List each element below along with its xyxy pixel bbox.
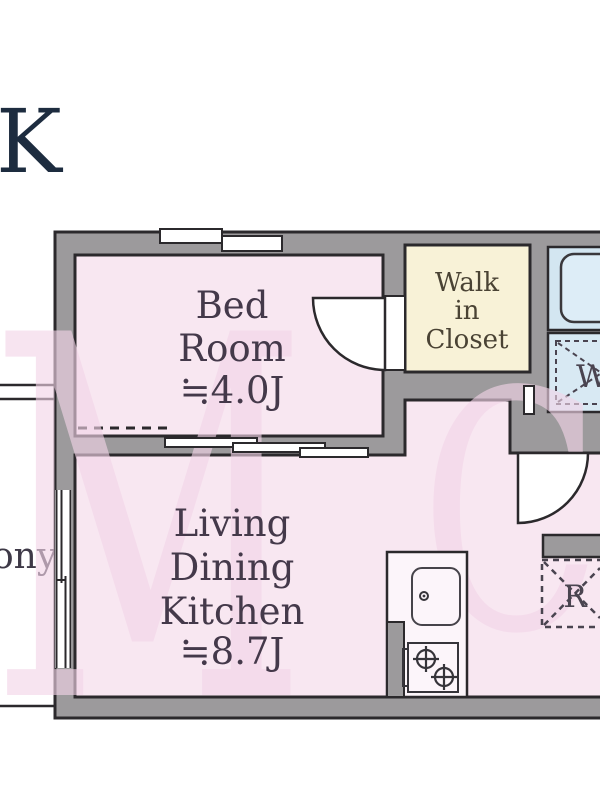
ldk-label: Living Dining Kitchen ≒8.7J [160,502,305,673]
ldk-label-line2: Dining [170,546,295,589]
ldk-size-label: ≒8.7J [180,630,285,673]
wic-label-line3: Closet [425,325,509,355]
washing-machine-label: W [576,359,600,395]
bathtub [561,254,600,322]
ldk-label-line1: Living [174,502,291,545]
floor-plan-canvas: K ony M C [0,0,600,800]
bedroom-label-line2: Room [178,327,286,370]
wic-label-line2: in [454,296,479,326]
wall-stub [543,535,600,557]
bathroom-area [548,247,600,330]
ldk-label-line3: Kitchen [160,590,305,633]
refrigerator-label: R [563,579,588,615]
balcony-window [55,490,72,668]
wic-label-line1: Walk [435,268,499,298]
kitchen-sink [412,568,460,625]
hall-door-niche [524,386,534,414]
floor-plan: K ony M C [0,0,600,800]
bedroom-size-label: ≒4.0J [180,369,285,412]
kitchen-counter [387,552,467,697]
kitchen-wall-column [387,622,404,697]
unit-type-label: K [0,90,64,193]
bedroom-label-line1: Bed [196,284,269,327]
